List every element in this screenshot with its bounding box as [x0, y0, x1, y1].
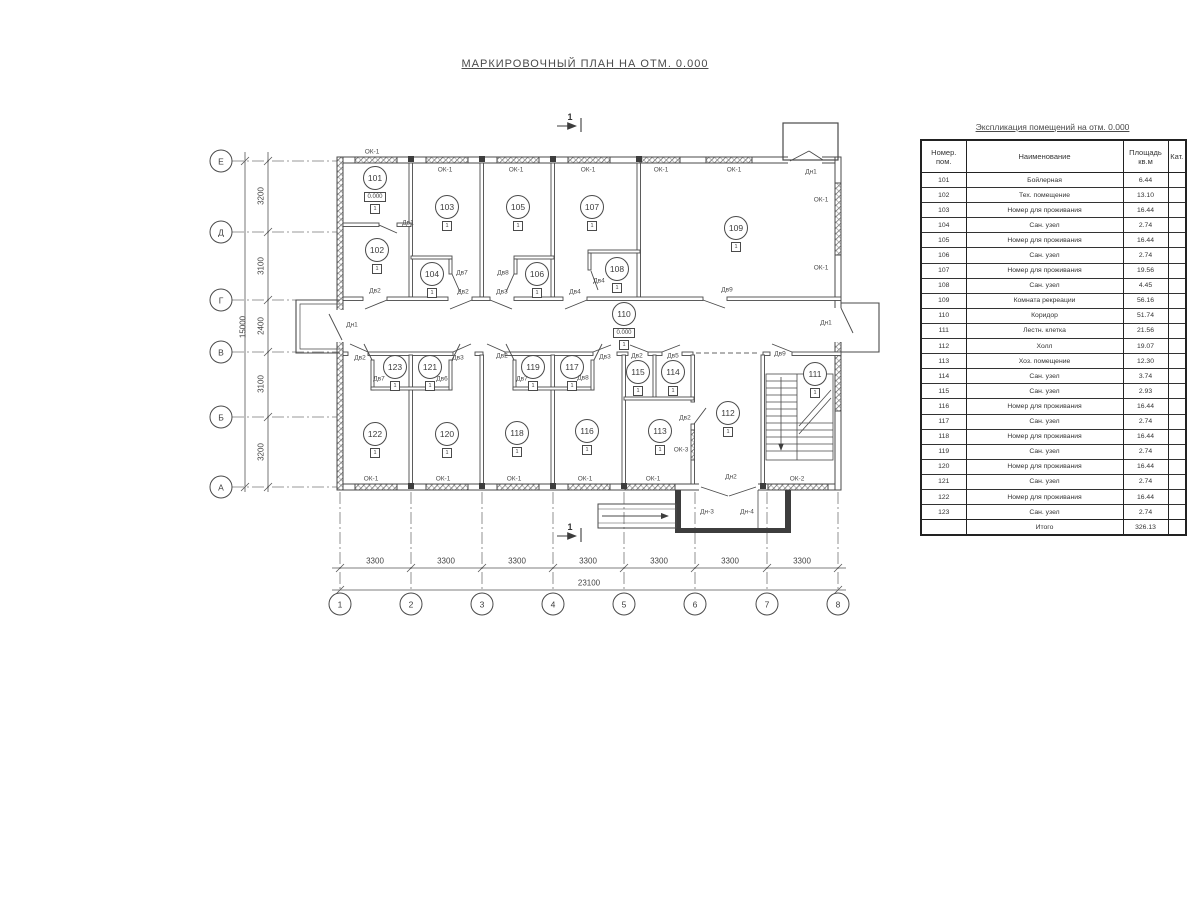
plan-label: ОК-1 — [581, 167, 596, 174]
plan-label: Дв8 — [577, 375, 588, 382]
axis-col-2: 2 — [400, 593, 423, 616]
floor-type-mark: 1 — [528, 381, 538, 391]
room-tag-113: 1131 — [648, 419, 672, 455]
room-tag-119: 1191 — [521, 355, 545, 391]
floor-type-mark: 1 — [370, 204, 380, 214]
room-number: 110 — [612, 302, 636, 326]
plan-label: 3300 — [650, 557, 668, 566]
room-tag-101: 1010.0001 — [363, 166, 387, 214]
floor-type-mark: 1 — [370, 448, 380, 458]
explication-title: Экспликация помещений на отм. 0.000 — [920, 122, 1185, 132]
floor-type-mark: 1 — [619, 340, 629, 350]
room-tag-115: 1151 — [626, 360, 650, 396]
table-row: 108Сан. узел4.45 — [921, 278, 1186, 293]
plan-label: Дв2 — [631, 353, 642, 360]
plan-label: 3200 — [257, 443, 266, 461]
plan-label: ОК-1 — [727, 167, 742, 174]
plan-label: 1 — [567, 112, 572, 122]
axis-row-А: А — [210, 476, 233, 499]
table-row: 107Номер для проживания19.56 — [921, 263, 1186, 278]
table-row: 121Сан. узел2.74 — [921, 474, 1186, 489]
room-tag-108: 1081 — [605, 257, 629, 293]
plan-label: Дн1 — [346, 322, 358, 329]
room-tag-111: 1111 — [803, 362, 827, 398]
room-number: 113 — [648, 419, 672, 443]
plan-label: 3300 — [366, 557, 384, 566]
plan-label: Дв7 — [516, 376, 527, 383]
plan-label: Дв2 — [354, 355, 365, 362]
room-tag-120: 1201 — [435, 422, 459, 458]
plan-label: Дн1 — [805, 169, 817, 176]
plan-label: Дв3 — [496, 289, 507, 296]
room-number: 118 — [505, 421, 529, 445]
room-number: 120 — [435, 422, 459, 446]
axis-col-6: 6 — [684, 593, 707, 616]
plan-label: Дв3 — [599, 354, 610, 361]
room-tag-103: 1031 — [435, 195, 459, 231]
room-number: 115 — [626, 360, 650, 384]
floor-type-mark: 1 — [731, 242, 741, 252]
plan-label: Дв2 — [679, 415, 690, 422]
plan-label: 3300 — [508, 557, 526, 566]
plan-label: 3300 — [793, 557, 811, 566]
room-tag-109: 1091 — [724, 216, 748, 252]
table-row: 112Холл19.07 — [921, 339, 1186, 354]
table-row: 119Сан. узел2.74 — [921, 444, 1186, 459]
floor-type-mark: 1 — [668, 386, 678, 396]
room-number: 112 — [716, 401, 740, 425]
axis-row-Б: Б — [210, 406, 233, 429]
col-header-name: Наименование — [966, 140, 1123, 173]
table-row: 109Комната рекреации56.16 — [921, 293, 1186, 308]
plan-label: Дв9 — [721, 287, 732, 294]
plan-label: 15000 — [239, 316, 248, 338]
plan-label: 3200 — [257, 187, 266, 205]
floor-type-mark: 1 — [810, 388, 820, 398]
plan-label: Дв6 — [436, 376, 447, 383]
explication-table: Экспликация помещений на отм. 0.000 Номе… — [920, 122, 1185, 536]
plan-label: Дв2 — [496, 353, 507, 360]
col-header-number: Номер. пом. — [921, 140, 966, 173]
room-tag-121: 1211 — [418, 355, 442, 391]
room-tag-104: 1041 — [420, 262, 444, 298]
axis-row-В: В — [210, 341, 233, 364]
table-row: 114Сан. узел3.74 — [921, 369, 1186, 384]
floor-type-mark: 1 — [390, 381, 400, 391]
level-mark: 0.000 — [613, 328, 634, 338]
drawing-canvas: МАРКИРОВОЧНЫЙ ПЛАН НА ОТМ. 0.000 — [0, 0, 1200, 900]
room-number: 109 — [724, 216, 748, 240]
room-tag-114: 1141 — [661, 360, 685, 396]
plan-label: ОК-1 — [814, 265, 829, 272]
plan-label: ОК-2 — [790, 476, 805, 483]
table-row: 118Номер для проживания16.44 — [921, 429, 1186, 444]
plan-label: Дв7 — [373, 376, 384, 383]
room-tag-107: 1071 — [580, 195, 604, 231]
room-number: 116 — [575, 419, 599, 443]
plan-label: Дв3 — [452, 355, 463, 362]
floor-type-mark: 1 — [567, 381, 577, 391]
floor-type-mark: 1 — [655, 445, 665, 455]
plan-label: Дв9 — [774, 351, 785, 358]
table-row: 101Бойлерная6.44 — [921, 173, 1186, 188]
plan-label: ОК-1 — [654, 167, 669, 174]
table-row: 120Номер для проживания16.44 — [921, 459, 1186, 474]
plan-label: Дн-3 — [700, 509, 714, 516]
table-row: 106Сан. узел2.74 — [921, 248, 1186, 263]
col-header-category: Кат. — [1168, 140, 1186, 173]
plan-label: Дв1 — [402, 220, 413, 227]
floor-type-mark: 1 — [425, 381, 435, 391]
plan-label: ОК-1 — [814, 197, 829, 204]
table-row: 122Номер для проживания16.44 — [921, 489, 1186, 504]
floor-type-mark: 1 — [442, 221, 452, 231]
room-number: 102 — [365, 238, 389, 262]
room-number: 105 — [506, 195, 530, 219]
plan-label: Дв4 — [593, 278, 604, 285]
explication-grid: Номер. пом. Наименование Площадь кв.м Ка… — [920, 139, 1187, 536]
plan-label: Дв4 — [569, 289, 580, 296]
table-row: 110Коридор51.74 — [921, 308, 1186, 323]
plan-label: ОК-1 — [365, 149, 380, 156]
plan-label: 1 — [567, 522, 572, 532]
table-row: 123Сан. узел2.74 — [921, 505, 1186, 520]
plan-label: 3100 — [257, 375, 266, 393]
floor-type-mark: 1 — [513, 221, 523, 231]
plan-label: ОК-1 — [578, 476, 593, 483]
table-row: 104Сан. узел2.74 — [921, 218, 1186, 233]
room-tag-102: 1021 — [365, 238, 389, 274]
room-tag-117: 1171 — [560, 355, 584, 391]
floor-type-mark: 1 — [723, 427, 733, 437]
floor-type-mark: 1 — [587, 221, 597, 231]
room-tag-110: 1100.0001 — [612, 302, 636, 350]
room-number: 106 — [525, 262, 549, 286]
axis-col-7: 7 — [756, 593, 779, 616]
table-row: 105Номер для проживания16.44 — [921, 233, 1186, 248]
axis-row-Е: Е — [210, 150, 233, 173]
plan-label: 3300 — [437, 557, 455, 566]
plan-label: Дв8 — [497, 270, 508, 277]
axis-col-5: 5 — [613, 593, 636, 616]
room-number: 103 — [435, 195, 459, 219]
floor-type-mark: 1 — [532, 288, 542, 298]
room-tag-106: 1061 — [525, 262, 549, 298]
plan-label: 3300 — [721, 557, 739, 566]
plan-label: Дв7 — [456, 270, 467, 277]
axis-col-4: 4 — [542, 593, 565, 616]
room-number: 122 — [363, 422, 387, 446]
plan-label: 3300 — [579, 557, 597, 566]
table-row: 117Сан. узел2.74 — [921, 414, 1186, 429]
plan-label: ОК-1 — [436, 476, 451, 483]
plan-label: ОК-1 — [364, 476, 379, 483]
table-row: 103Номер для проживания16.44 — [921, 203, 1186, 218]
table-row: 111Лестн. клетка21.56 — [921, 323, 1186, 338]
plan-label: 3100 — [257, 257, 266, 275]
room-tag-118: 1181 — [505, 421, 529, 457]
floor-type-mark: 1 — [582, 445, 592, 455]
room-tag-116: 1161 — [575, 419, 599, 455]
table-row: 113Хоз. помещение12.30 — [921, 354, 1186, 369]
col-header-area: Площадь кв.м — [1123, 140, 1168, 173]
axis-row-Д: Д — [210, 221, 233, 244]
plan-label: ОК-1 — [438, 167, 453, 174]
plan-label: Дв2 — [369, 288, 380, 295]
table-total-row: Итого326.13 — [921, 520, 1186, 536]
room-tag-123: 1231 — [383, 355, 407, 391]
axis-col-8: 8 — [827, 593, 850, 616]
plan-label: ОК-1 — [507, 476, 522, 483]
room-number: 104 — [420, 262, 444, 286]
plan-label: ОК-1 — [509, 167, 524, 174]
room-number: 114 — [661, 360, 685, 384]
floor-type-mark: 1 — [442, 448, 452, 458]
plan-label: Дн2 — [725, 474, 737, 481]
plan-label: Дв2 — [457, 289, 468, 296]
room-number: 108 — [605, 257, 629, 281]
table-row: 116Номер для проживания16.44 — [921, 399, 1186, 414]
plan-label: Дв5 — [667, 353, 678, 360]
room-number: 123 — [383, 355, 407, 379]
axis-col-1: 1 — [329, 593, 352, 616]
axis-col-3: 3 — [471, 593, 494, 616]
table-row: 102Тех. помещение13.10 — [921, 188, 1186, 203]
plan-label: Дн1 — [820, 320, 832, 327]
plan-label: ОК-1 — [646, 476, 661, 483]
room-number: 111 — [803, 362, 827, 386]
plan-label: Дн-4 — [740, 509, 754, 516]
table-row: 115Сан. узел2.93 — [921, 384, 1186, 399]
plan-label: ОК-3 — [674, 447, 689, 454]
floor-type-mark: 1 — [612, 283, 622, 293]
room-number: 107 — [580, 195, 604, 219]
room-tag-105: 1051 — [506, 195, 530, 231]
level-mark: 0.000 — [364, 192, 385, 202]
floor-type-mark: 1 — [427, 288, 437, 298]
floor-type-mark: 1 — [633, 386, 643, 396]
axis-row-Г: Г — [210, 289, 233, 312]
plan-label: 23100 — [578, 579, 600, 588]
room-tag-122: 1221 — [363, 422, 387, 458]
room-number: 101 — [363, 166, 387, 190]
room-tag-112: 1121 — [716, 401, 740, 437]
plan-label: 2400 — [257, 317, 266, 335]
floor-type-mark: 1 — [372, 264, 382, 274]
floor-type-mark: 1 — [512, 447, 522, 457]
